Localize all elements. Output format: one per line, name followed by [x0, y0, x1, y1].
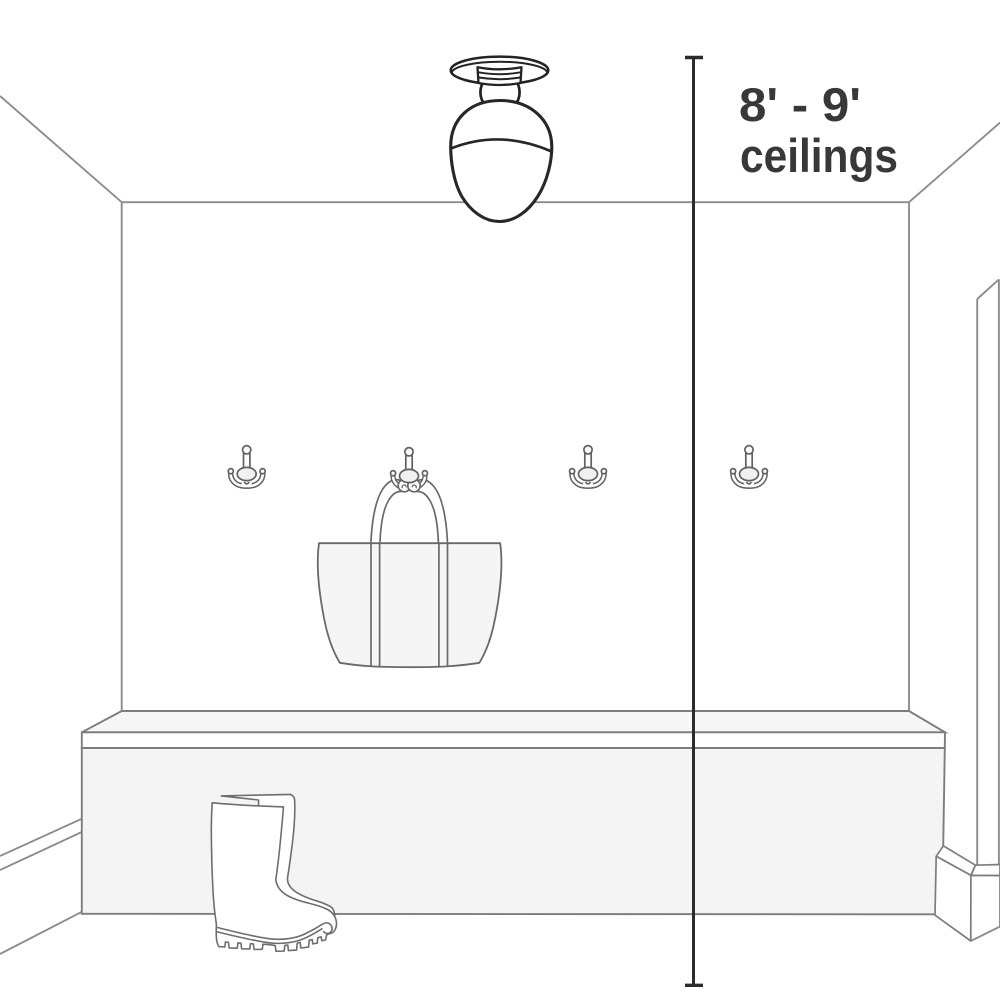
svg-text:ceilings: ceilings	[740, 129, 898, 182]
svg-text:8' - 9': 8' - 9'	[739, 78, 861, 131]
